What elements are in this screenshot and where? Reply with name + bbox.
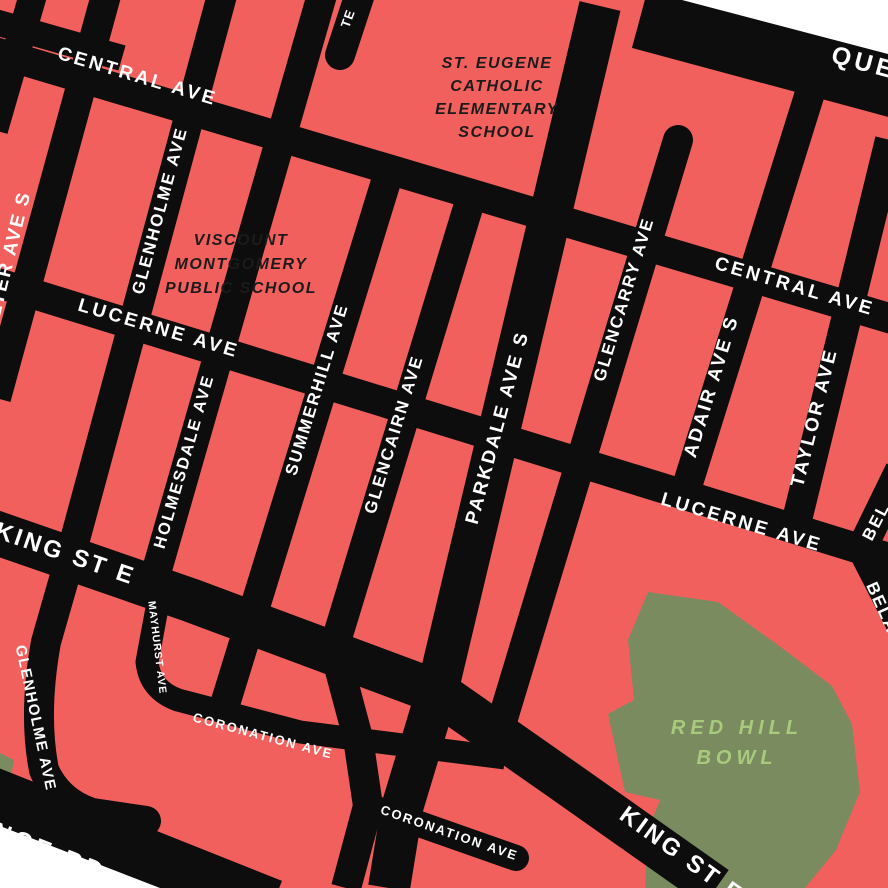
viscount-school-label-line3: PUBLIC SCHOOL bbox=[165, 280, 317, 297]
viscount-school-label-line1: VISCOUNT bbox=[194, 232, 289, 249]
st-eugene-school-label-line1: ST. EUGENE bbox=[442, 55, 553, 72]
st-eugene-school-label-line3: ELEMENTARY bbox=[435, 101, 559, 118]
map-stage: CENTRAL AVE CENTRAL AVE LUCERNE AVE LUCE… bbox=[0, 0, 888, 888]
red-hill-bowl-label-line1: RED HILL bbox=[671, 717, 803, 739]
neighbourhood-map: CENTRAL AVE CENTRAL AVE LUCERNE AVE LUCE… bbox=[0, 0, 888, 888]
st-eugene-school-label-line2: CATHOLIC bbox=[450, 78, 543, 95]
viscount-school-label-line2: MONTGOMERY bbox=[175, 256, 308, 273]
st-eugene-school-label-line4: SCHOOL bbox=[458, 124, 535, 141]
red-hill-bowl-label-line2: BOWL bbox=[696, 747, 777, 769]
